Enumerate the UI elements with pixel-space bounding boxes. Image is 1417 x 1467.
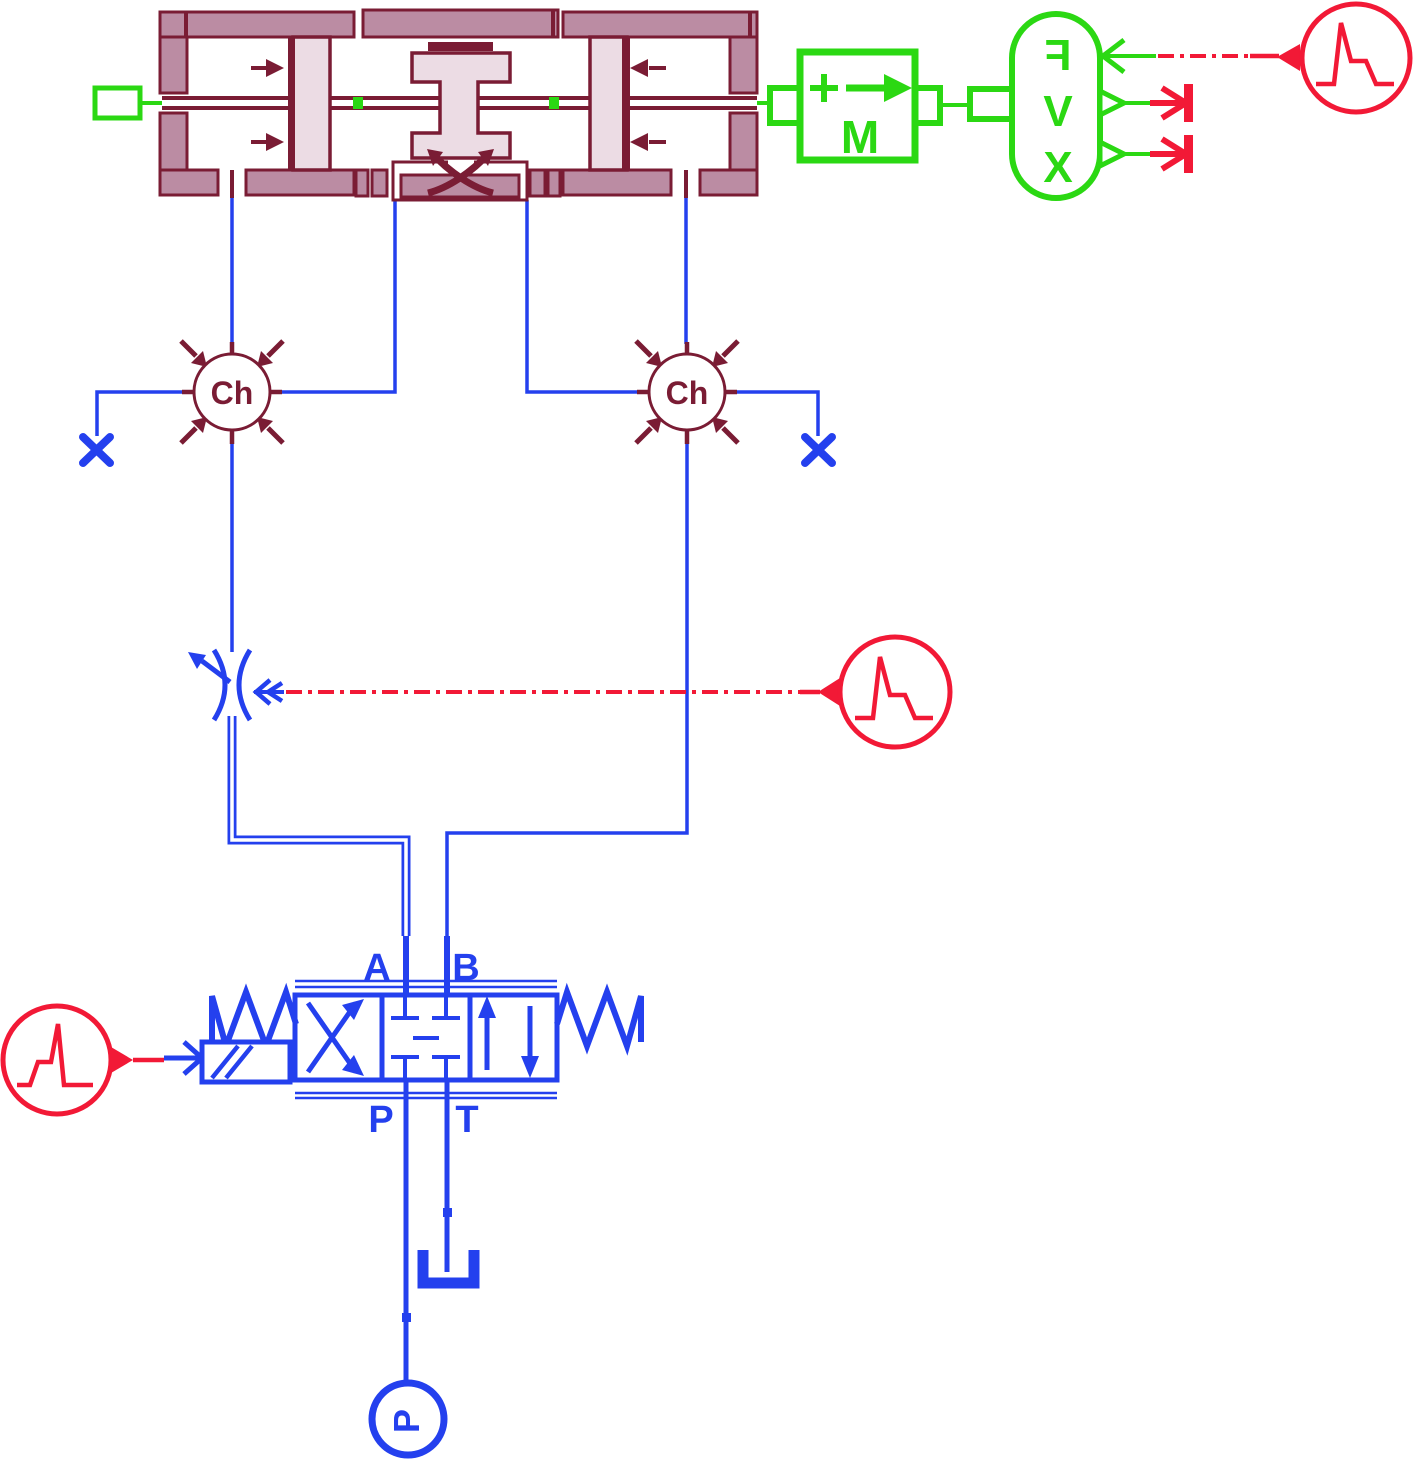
- parallel-arrowhead-down-icon: [521, 1056, 539, 1078]
- spring-right-icon: [557, 992, 641, 1046]
- mass-port-left: [770, 88, 800, 123]
- pipe-right-chamber-to-cylinder-mid[interactable]: [527, 200, 639, 392]
- signal-plug-velocity[interactable]: [1150, 84, 1193, 122]
- chamber-right[interactable]: Ch: [636, 341, 738, 444]
- plugged-port-left-icon[interactable]: [83, 437, 110, 463]
- plugged-port-right-icon[interactable]: [805, 437, 832, 463]
- source-output-port-icon: [111, 1047, 133, 1073]
- orifice-arcs-icon: [214, 650, 250, 720]
- pipe-joint-dot-t: [443, 1208, 452, 1217]
- sensor-port-left: [970, 89, 1012, 119]
- chamber-label: Ch: [666, 375, 709, 411]
- signal-lines[interactable]: [133, 56, 1279, 1060]
- valve-position-crossed: [295, 995, 382, 1080]
- plug-bar-icon: [1184, 84, 1193, 122]
- parallel-arrowhead-up-icon: [478, 996, 496, 1018]
- pipe-left-chamber-to-cylinder-mid[interactable]: [270, 200, 395, 392]
- mass-block[interactable]: M: [770, 52, 940, 163]
- chamber-left[interactable]: Ch: [181, 341, 283, 444]
- valve-port-b-label: B: [452, 947, 479, 989]
- pipe-right-chamber-to-plug[interactable]: [725, 392, 818, 436]
- rod-tick-left: [353, 97, 363, 109]
- signal-source-valve[interactable]: [3, 1006, 133, 1114]
- pressure-source[interactable]: P: [372, 1383, 444, 1455]
- source-output-port-icon: [1277, 44, 1300, 71]
- signal-source-force[interactable]: [1277, 4, 1410, 112]
- chamber-label: Ch: [211, 375, 254, 411]
- source-circle: [1302, 4, 1410, 112]
- pipe-joint-dot-p: [402, 1313, 411, 1322]
- hydraulic-cylinder[interactable]: [160, 10, 757, 200]
- pipe-left-chamber-to-plug[interactable]: [97, 392, 194, 436]
- pipe-orifice-to-port-a-core: [232, 716, 406, 936]
- mass-port-right: [915, 88, 940, 123]
- position-output-port-icon: [1100, 142, 1124, 166]
- valve-port-p-label: P: [368, 1099, 393, 1141]
- sketch-canvas: M F V X: [0, 0, 1417, 1467]
- valve-port-t-label: T: [455, 1099, 478, 1141]
- closed-center-symbols: [391, 995, 460, 1080]
- signal-plug-position[interactable]: [1150, 135, 1193, 173]
- plug-arrow-icon: [1150, 139, 1186, 169]
- sensor-velocity-label: V: [1043, 87, 1073, 136]
- source-circle: [840, 637, 950, 747]
- pistons-and-spool: [293, 37, 627, 170]
- source-circle: [3, 1006, 111, 1114]
- spring-left-icon: [212, 992, 296, 1046]
- source-output-port-icon: [818, 678, 840, 706]
- velocity-output-port-icon: [1100, 91, 1124, 115]
- plug-bar-icon: [1184, 135, 1193, 173]
- directional-valve[interactable]: A B P T: [164, 947, 641, 1141]
- valve-port-a-label: A: [363, 947, 390, 989]
- rod-tick-right: [549, 97, 559, 109]
- pipe-orifice-to-port-a[interactable]: [232, 716, 406, 936]
- pressure-source-label: P: [386, 1409, 427, 1433]
- sensor-position-label: X: [1043, 143, 1072, 192]
- mass-label: M: [841, 111, 879, 163]
- solenoid-input-arrow-icon: [164, 1042, 202, 1074]
- rod-anchor-left[interactable]: [95, 88, 140, 118]
- fvx-sensor[interactable]: F V X: [970, 14, 1156, 198]
- sensor-force-label: F: [1045, 31, 1072, 80]
- variable-orifice[interactable]: [188, 650, 284, 720]
- plug-arrow-icon: [1150, 88, 1186, 118]
- signal-source-orifice[interactable]: [818, 637, 950, 747]
